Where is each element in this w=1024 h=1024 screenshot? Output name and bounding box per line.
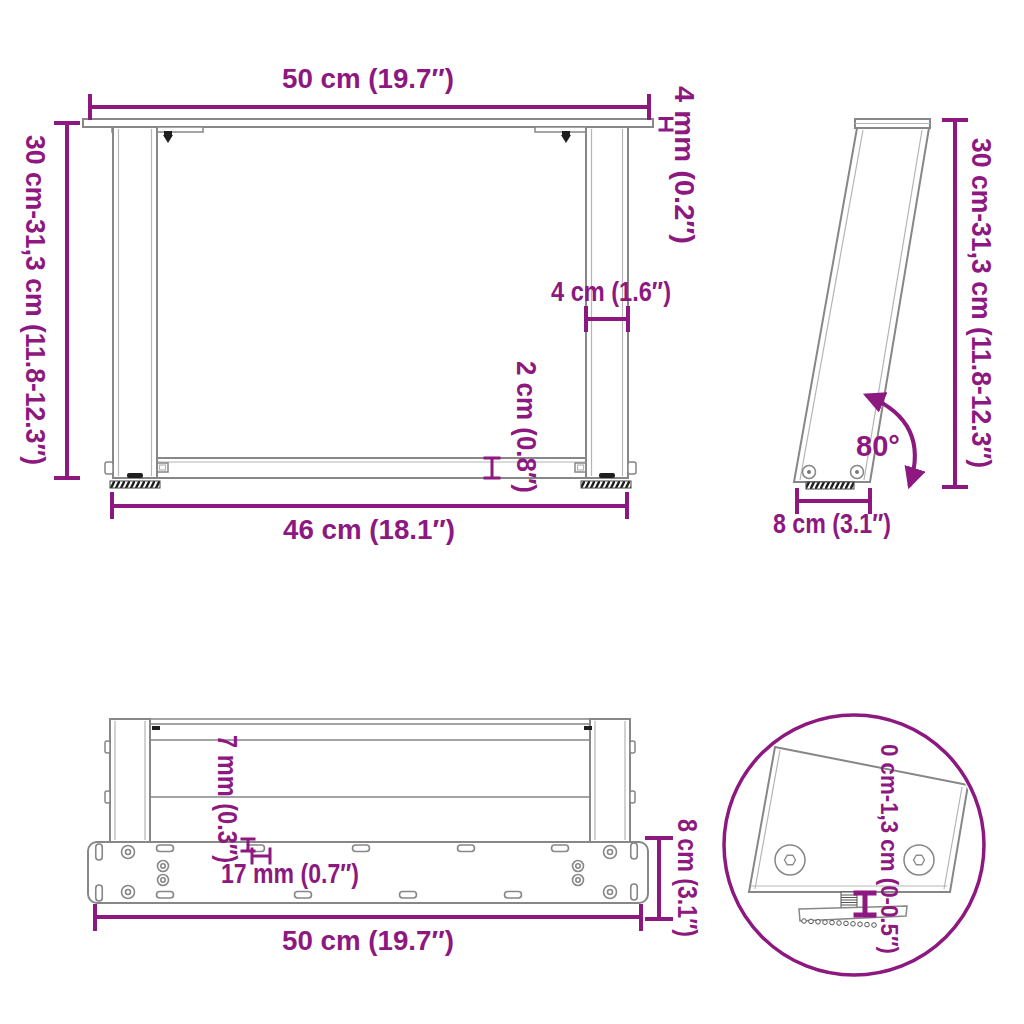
top-view: 7 mm (0.3″) 17 mm (0.7″) 8 cm (3.1″) 50 …: [88, 719, 702, 956]
label-crossbar-thickness: 2 cm (0.8″): [511, 361, 541, 493]
label-leg-angle: 80°: [856, 430, 900, 462]
front-view: 50 cm (19.7″) 4 mm (0.2″) 30 cm-31,3 cm …: [20, 64, 699, 545]
side-view: 30 cm-31,3 cm (11.8-12.3″) 80° 8 cm (3.1…: [773, 119, 996, 539]
label-side-height: 30 cm-31,3 cm (11.8-12.3″): [966, 138, 996, 468]
screw-icon: [163, 135, 173, 143]
label-foot-depth: 8 cm (3.1″): [773, 509, 891, 539]
top-plate: [83, 119, 653, 127]
label-plate-depth: 8 cm (3.1″): [672, 819, 702, 937]
screw-icon: [584, 726, 592, 730]
diagram-canvas: 50 cm (19.7″) 4 mm (0.2″) 30 cm-31,3 cm …: [0, 0, 1024, 1024]
label-front-top-width: 50 cm (19.7″): [282, 64, 454, 94]
dimension-line-top-width: [90, 96, 649, 118]
frame-top-edge: [110, 719, 630, 724]
screw-icon: [152, 726, 160, 730]
label-front-top-thickness: 4 mm (0.2″): [669, 86, 699, 244]
dimension-line-plate-depth: [647, 838, 671, 919]
label-hole-depth: 7 mm (0.3″): [212, 735, 242, 863]
top-view-left-leg: [110, 719, 150, 842]
top-mounting-brackets: [112, 127, 626, 143]
label-front-height: 30 cm-31,3 cm (11.8-12.3″): [20, 135, 50, 465]
leg-side-tabs: [105, 741, 635, 803]
product-dimension-diagram: 50 cm (19.7″) 4 mm (0.2″) 30 cm-31,3 cm …: [0, 0, 1024, 1024]
label-plate-width: 50 cm (19.7″): [282, 926, 454, 956]
dimension-line-bottom-width: [112, 494, 627, 517]
top-view-right-leg: [590, 719, 630, 842]
detail-view: 0 cm-1,3 cm (0-0.5″): [724, 715, 984, 975]
label-front-bottom-width: 46 cm (18.1″): [283, 515, 455, 545]
screw-icon: [561, 135, 571, 143]
dimension-line-side-height: [944, 120, 966, 487]
label-foot-adjustment: 0 cm-1,3 cm (0-0.5″): [876, 744, 903, 954]
left-leg: [113, 127, 157, 478]
label-leg-width: 4 cm (1.6″): [551, 277, 671, 307]
dimension-line-front-height: [56, 123, 78, 478]
label-slot-length: 17 mm (0.7″): [221, 859, 359, 889]
side-foot-pad: [806, 482, 854, 489]
